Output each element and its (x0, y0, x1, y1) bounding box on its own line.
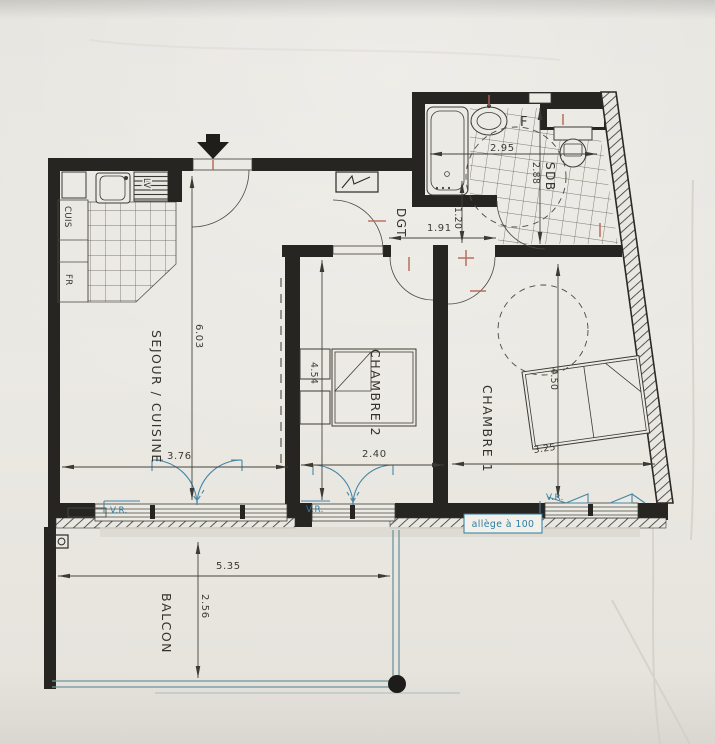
entrance-door-arc (192, 170, 249, 227)
floor-plan-photo: V.R. V.R. V.R. allège à 100 (0, 0, 715, 744)
wall-sdb-top (412, 92, 614, 104)
wall-balcony-stub (44, 527, 56, 689)
balcony-railing (52, 530, 460, 693)
kitchen-tiled-floor (88, 202, 176, 302)
niche-inset (547, 109, 604, 127)
sdb-window-opening (529, 93, 551, 103)
entrance-door-leaf (193, 159, 252, 170)
toilet-cistern (554, 127, 592, 140)
allege-label: allège à 100 (472, 519, 535, 530)
wall-chambre1-north (495, 245, 622, 257)
dim-label-4-50: 4.50 (548, 368, 559, 390)
sejour-dgt-door-arc (333, 200, 383, 250)
wall-top-left (48, 158, 193, 171)
chambre1-turning-circle (498, 285, 588, 375)
floor-plan-drawing: V.R. V.R. V.R. allège à 100 (0, 0, 715, 744)
chambre1-door-arc (448, 257, 495, 304)
room-label-balcon: BALCON (159, 593, 174, 654)
wall-slanted-hatched (601, 92, 673, 503)
dim-label-3-25: 3.25 (533, 442, 557, 456)
kitchen-cupboard (62, 172, 86, 198)
dim-label-1-20: 1.20 (452, 207, 463, 229)
entrance (192, 134, 252, 227)
dim-label-4-54: 4.54 (308, 362, 319, 384)
nightstand (300, 391, 330, 424)
wall-sejour-chambre2 (285, 245, 300, 505)
label-lave-vaisselle: LV (141, 178, 151, 188)
dim-label-2-56: 2.56 (199, 594, 210, 619)
entrance-arrow-icon (197, 142, 229, 159)
vr-label-chambre2: V.R. (306, 505, 324, 515)
wall-top-mid (252, 158, 425, 171)
dim-label-1-91: 1.91 (427, 223, 452, 234)
windows (95, 503, 638, 521)
dim-label-6-03: 6.03 (193, 324, 204, 349)
balcony-drain-icon (55, 535, 68, 548)
faucet-icon (124, 176, 128, 180)
sejour-dgt-door-leaf (333, 246, 383, 254)
electrical-panel (336, 172, 378, 192)
room-label-chambre2: CHAMBRE 2 (368, 349, 383, 437)
vr-label-sejour: V.R. (110, 506, 128, 516)
wall-sdb-left (412, 92, 425, 207)
label-fenetre: F (520, 115, 527, 130)
chambre2-door-arc (390, 257, 433, 300)
dim-label-5-35: 5.35 (216, 561, 241, 572)
railing-post (388, 675, 406, 693)
dim-label-2-95: 2.95 (490, 143, 515, 154)
window-chambre1 (545, 503, 638, 518)
dim-label-2-88: 2.88 (530, 162, 541, 184)
room-label-dgt: DGT (394, 208, 408, 238)
wall-chambre1-chambre2 (433, 245, 448, 505)
room-label-sdb: SDB (543, 162, 557, 192)
washbasin (471, 107, 507, 135)
wall-sdb-bottom (412, 195, 497, 207)
room-label-sejour-cuisine: SEJOUR / CUISINE (149, 330, 164, 464)
chambre2-furniture (300, 349, 416, 426)
allege-note: allège à 100 (464, 514, 542, 533)
balcony-slab-edge (100, 527, 640, 537)
label-cuisiniere: CUIS (62, 206, 72, 228)
dim-label-2-40: 2.40 (362, 449, 387, 460)
vr-label-chambre1: V.R. (546, 493, 564, 503)
dim-label-3-76: 3.76 (167, 451, 192, 462)
room-label-chambre1: CHAMBRE 1 (480, 385, 495, 473)
window-chambre2 (312, 504, 395, 521)
chambre1-furniture (522, 356, 650, 450)
label-frigo: FR (63, 274, 73, 286)
